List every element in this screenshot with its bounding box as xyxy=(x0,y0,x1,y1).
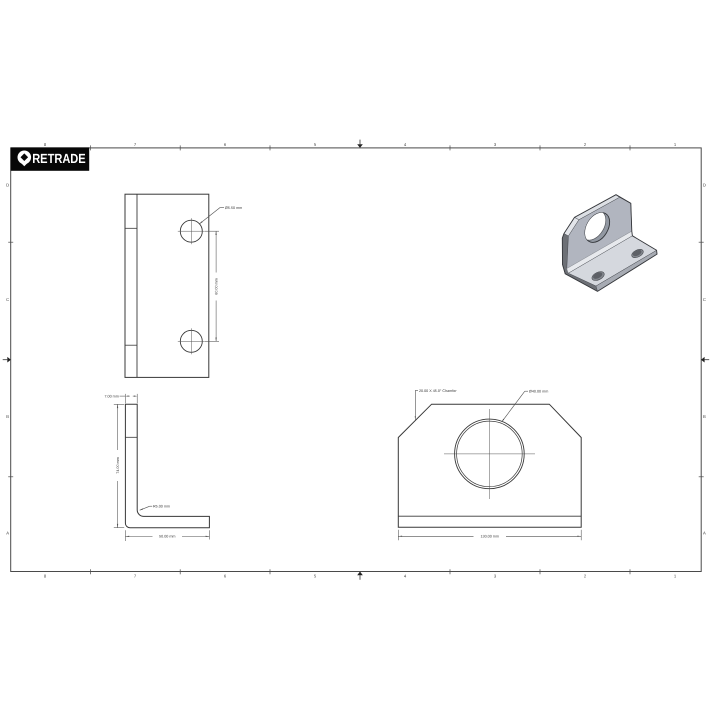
svg-text:7: 7 xyxy=(134,574,137,579)
svg-text:C: C xyxy=(703,297,706,302)
svg-text:1: 1 xyxy=(674,142,677,147)
svg-text:6: 6 xyxy=(224,142,227,147)
svg-text:D: D xyxy=(703,183,706,188)
svg-text:7.00 mm: 7.00 mm xyxy=(104,394,118,398)
svg-text:RETRADE: RETRADE xyxy=(32,151,86,166)
svg-text:3: 3 xyxy=(494,142,497,147)
svg-text:R5.00 mm: R5.00 mm xyxy=(153,505,170,509)
svg-text:Ø40.00 mm: Ø40.00 mm xyxy=(529,390,548,394)
svg-text:60.00 mm: 60.00 mm xyxy=(214,278,218,294)
svg-text:C: C xyxy=(6,297,9,302)
svg-text:4: 4 xyxy=(404,142,407,147)
svg-text:5: 5 xyxy=(314,142,317,147)
svg-text:2: 2 xyxy=(584,574,587,579)
svg-text:20.00 X 45.0° Chamfer: 20.00 X 45.0° Chamfer xyxy=(419,389,457,393)
svg-text:A: A xyxy=(703,531,706,536)
svg-text:1: 1 xyxy=(674,574,677,579)
svg-text:3: 3 xyxy=(494,574,497,579)
svg-text:Ø5.50 mm: Ø5.50 mm xyxy=(225,206,242,210)
svg-text:7: 7 xyxy=(134,142,137,147)
svg-text:4: 4 xyxy=(404,574,407,579)
svg-text:6: 6 xyxy=(224,574,227,579)
svg-text:50.00 mm: 50.00 mm xyxy=(159,535,175,539)
svg-text:2: 2 xyxy=(584,142,587,147)
svg-text:130.00 mm: 130.00 mm xyxy=(480,535,498,539)
svg-text:B: B xyxy=(6,414,9,419)
svg-text:8: 8 xyxy=(44,142,47,147)
svg-text:8: 8 xyxy=(44,574,47,579)
svg-text:A: A xyxy=(6,531,9,536)
svg-text:D: D xyxy=(6,183,9,188)
svg-text:5: 5 xyxy=(314,574,317,579)
svg-text:B: B xyxy=(703,414,706,419)
svg-text:74.00 mm: 74.00 mm xyxy=(116,457,120,473)
